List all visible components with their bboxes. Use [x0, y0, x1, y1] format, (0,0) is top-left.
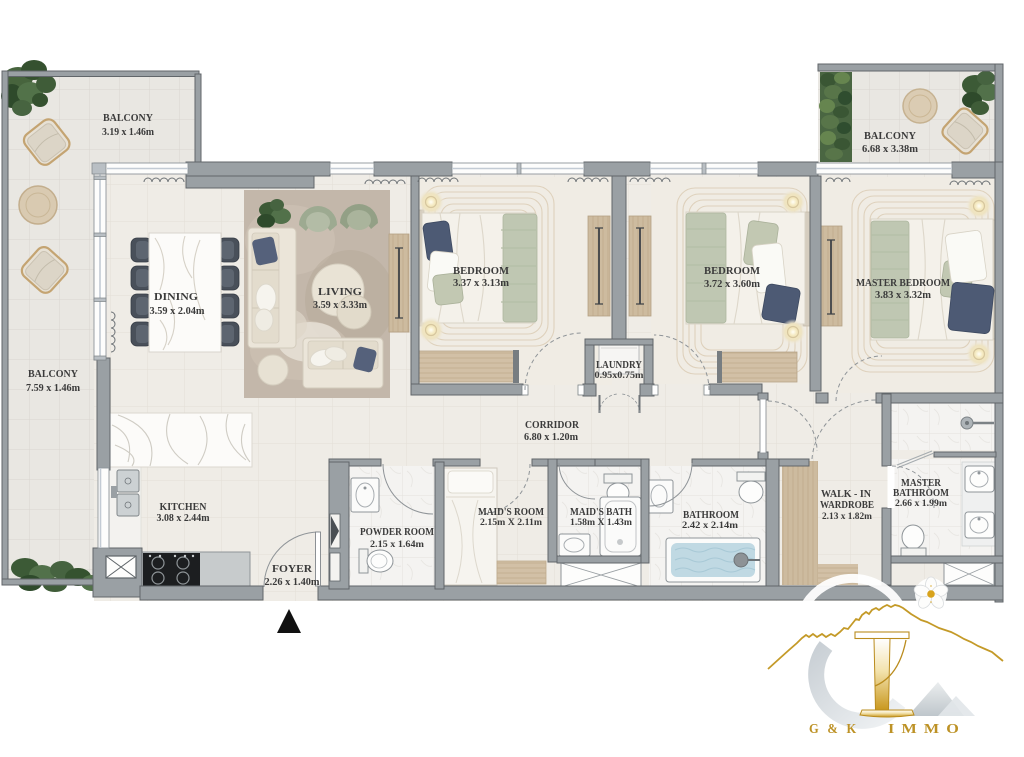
svg-text:2.15m X 2.11m: 2.15m X 2.11m: [480, 518, 542, 528]
svg-text:BEDROOM: BEDROOM: [704, 265, 761, 277]
svg-text:POWDER ROOM: POWDER ROOM: [360, 527, 435, 538]
svg-text:3.59 x 2.04m: 3.59 x 2.04m: [150, 306, 205, 317]
svg-text:FOYER: FOYER: [272, 563, 313, 575]
svg-text:LAUNDRY: LAUNDRY: [596, 360, 643, 371]
svg-text:2.26 x 1.40m: 2.26 x 1.40m: [265, 577, 320, 588]
svg-text:MASTER BEDROOM: MASTER BEDROOM: [856, 277, 951, 289]
svg-text:6.80 x 1.20m: 6.80 x 1.20m: [524, 432, 578, 443]
svg-text:1.58m X 1.43m: 1.58m X 1.43m: [570, 518, 632, 528]
svg-text:MAID'S BATH: MAID'S BATH: [570, 507, 632, 518]
svg-text:G & K: G & K: [809, 721, 859, 736]
svg-text:DINING: DINING: [154, 291, 198, 303]
svg-text:3.08 x 2.44m: 3.08 x 2.44m: [157, 513, 210, 524]
svg-text:WARDROBE: WARDROBE: [820, 500, 874, 511]
svg-text:2.66 x 1.99m: 2.66 x 1.99m: [895, 499, 947, 509]
svg-text:BALCONY: BALCONY: [28, 368, 78, 380]
svg-text:2.13 x 1.82m: 2.13 x 1.82m: [822, 512, 872, 522]
svg-text:BEDROOM: BEDROOM: [453, 265, 510, 277]
svg-text:BALCONY: BALCONY: [103, 112, 153, 124]
svg-text:WALK - IN: WALK - IN: [821, 489, 872, 500]
svg-text:6.68 x 3.38m: 6.68 x 3.38m: [862, 144, 918, 155]
svg-text:KITCHEN: KITCHEN: [160, 501, 207, 513]
svg-text:3.37 x 3.13m: 3.37 x 3.13m: [453, 278, 509, 289]
svg-text:2.42 x 2.14m: 2.42 x 2.14m: [682, 521, 738, 531]
svg-text:3.59 x 3.33m: 3.59 x 3.33m: [313, 300, 367, 311]
svg-text:BALCONY: BALCONY: [864, 130, 916, 142]
svg-text:3.72 x 3.60m: 3.72 x 3.60m: [704, 279, 760, 290]
svg-text:MAID'S ROOM: MAID'S ROOM: [478, 507, 545, 518]
svg-text:3.83 x 3.32m: 3.83 x 3.32m: [875, 290, 931, 301]
svg-text:2.15 x 1.64m: 2.15 x 1.64m: [370, 540, 424, 550]
svg-text:3.19 x 1.46m: 3.19 x 1.46m: [102, 127, 154, 138]
svg-text:LIVING: LIVING: [318, 286, 362, 298]
svg-text:IMMO: IMMO: [888, 721, 966, 736]
svg-text:CORRIDOR: CORRIDOR: [525, 419, 580, 431]
svg-text:BATHROOM: BATHROOM: [683, 510, 740, 521]
svg-text:BATHROOM: BATHROOM: [893, 488, 950, 499]
svg-text:0.95x0.75m: 0.95x0.75m: [595, 371, 644, 381]
svg-text:7.59 x 1.46m: 7.59 x 1.46m: [26, 383, 80, 394]
